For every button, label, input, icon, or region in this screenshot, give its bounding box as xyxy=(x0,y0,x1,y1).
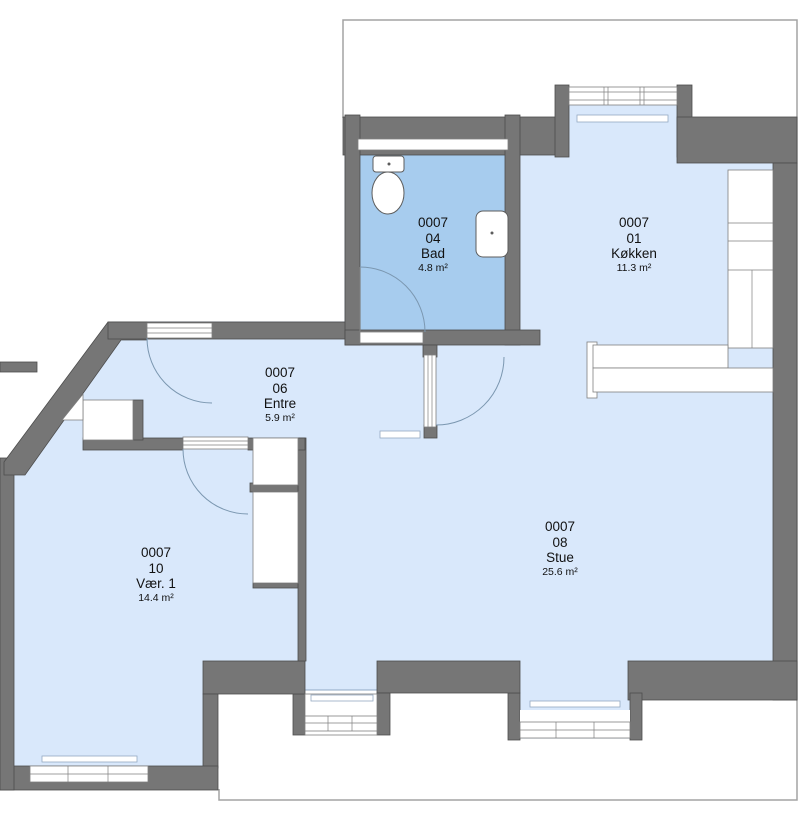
wall xyxy=(628,661,797,700)
wall xyxy=(508,693,520,740)
window xyxy=(569,87,677,105)
duct-shaft xyxy=(83,400,133,440)
bedroom-door xyxy=(183,437,248,449)
wall xyxy=(555,85,569,157)
wall xyxy=(108,322,347,339)
radiator xyxy=(577,115,668,122)
wall xyxy=(677,117,797,163)
wall xyxy=(0,362,37,372)
bathroom-door xyxy=(360,332,423,343)
window xyxy=(305,716,377,731)
wall xyxy=(298,438,306,661)
wall xyxy=(0,458,14,790)
entry-door xyxy=(147,323,212,338)
wall xyxy=(203,694,218,768)
wall xyxy=(377,661,520,693)
radiator xyxy=(42,756,137,762)
toilet-icon xyxy=(372,172,404,214)
window xyxy=(358,139,508,150)
counter-run xyxy=(593,368,773,392)
sink-drain-icon xyxy=(491,232,494,235)
toilet-button-icon xyxy=(388,163,391,166)
floor-plan-drawing xyxy=(0,0,800,814)
floor-plan-canvas: 0007 04 Bad 4.8 m² 0007 01 Køkken 11.3 m… xyxy=(0,0,800,814)
counter-units xyxy=(728,170,773,348)
duct-shaft xyxy=(253,492,298,583)
wall xyxy=(133,400,143,440)
counter-run xyxy=(593,345,728,368)
wall xyxy=(773,163,797,700)
wall xyxy=(630,693,642,740)
window-bay xyxy=(520,710,630,722)
duct-shaft xyxy=(253,438,298,485)
radiator xyxy=(311,695,373,701)
radiator xyxy=(380,431,420,438)
wall xyxy=(253,583,298,588)
wall xyxy=(377,693,390,735)
livingroom-door xyxy=(424,355,436,427)
radiator xyxy=(530,701,620,707)
wall xyxy=(293,694,305,735)
wall xyxy=(203,661,305,694)
